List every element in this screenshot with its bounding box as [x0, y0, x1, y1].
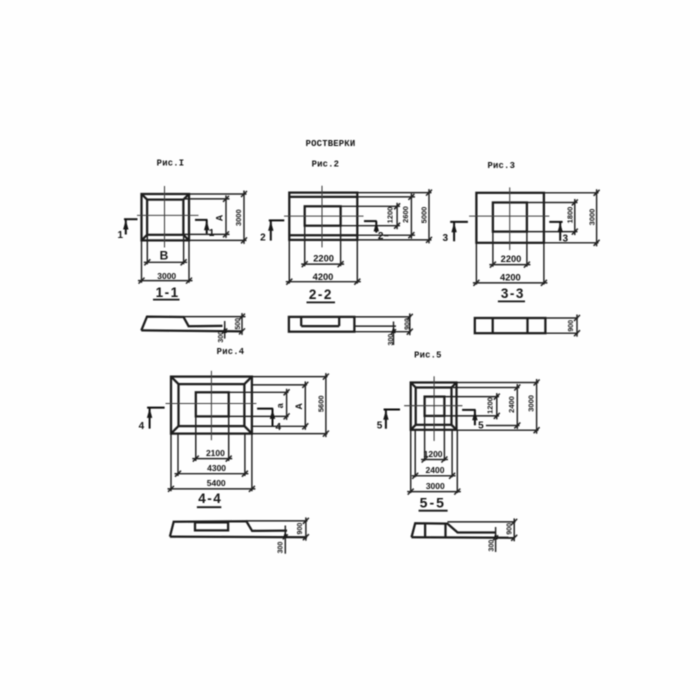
svg-text:3000: 3000: [588, 209, 597, 226]
svg-text:4: 4: [139, 421, 145, 432]
svg-text:А: А: [215, 214, 225, 221]
svg-text:300: 300: [488, 540, 495, 552]
svg-text:1800: 1800: [566, 207, 575, 224]
svg-text:3-3: 3-3: [501, 286, 525, 301]
svg-text:2200: 2200: [501, 254, 522, 264]
svg-text:Рис.2: Рис.2: [312, 159, 340, 169]
svg-text:4-4: 4-4: [198, 491, 222, 506]
svg-text:500: 500: [235, 318, 242, 330]
svg-text:В: В: [160, 249, 169, 263]
svg-text:а: а: [275, 402, 285, 408]
svg-text:300: 300: [277, 542, 284, 554]
svg-text:Рис.3: Рис.3: [487, 161, 515, 171]
svg-text:Рис.5: Рис.5: [414, 350, 442, 360]
svg-text:2400: 2400: [507, 396, 516, 413]
svg-text:900: 900: [404, 318, 411, 330]
svg-text:3000: 3000: [234, 209, 243, 226]
svg-text:Рис.I: Рис.I: [157, 158, 185, 168]
svg-text:1200: 1200: [386, 207, 395, 224]
svg-text:3000: 3000: [157, 271, 176, 281]
svg-text:5600: 5600: [317, 395, 326, 412]
svg-text:2400: 2400: [426, 465, 445, 475]
svg-text:300: 300: [218, 331, 225, 343]
svg-text:1200: 1200: [485, 397, 494, 414]
svg-text:3000: 3000: [426, 481, 445, 491]
svg-text:1-1: 1-1: [156, 285, 180, 300]
svg-text:900: 900: [568, 320, 575, 332]
svg-text:А: А: [294, 403, 304, 410]
svg-text:2-2: 2-2: [309, 287, 333, 302]
svg-text:5: 5: [377, 421, 383, 432]
svg-text:900: 900: [507, 523, 514, 535]
svg-text:4200: 4200: [313, 272, 334, 282]
svg-text:4200: 4200: [500, 272, 521, 282]
svg-text:4300: 4300: [207, 463, 226, 473]
svg-text:5: 5: [478, 421, 484, 432]
svg-text:РОСТВЕРКИ: РОСТВЕРКИ: [306, 139, 356, 149]
svg-text:3: 3: [443, 233, 449, 244]
svg-text:2600: 2600: [401, 206, 410, 223]
svg-text:2100: 2100: [206, 448, 225, 458]
svg-text:900: 900: [297, 523, 304, 535]
svg-text:2200: 2200: [313, 254, 334, 264]
svg-text:3000: 3000: [527, 395, 536, 412]
svg-text:1: 1: [118, 230, 124, 241]
svg-text:5-5: 5-5: [420, 495, 446, 511]
svg-text:Рис.4: Рис.4: [217, 347, 245, 357]
svg-text:300: 300: [388, 334, 395, 346]
svg-text:5000: 5000: [420, 207, 429, 224]
svg-text:2: 2: [378, 231, 384, 242]
svg-text:2: 2: [260, 232, 266, 243]
svg-text:1: 1: [209, 228, 215, 239]
svg-text:4: 4: [276, 422, 282, 433]
svg-text:5400: 5400: [207, 478, 226, 488]
svg-text:3: 3: [563, 234, 569, 245]
svg-text:1200: 1200: [424, 449, 443, 459]
